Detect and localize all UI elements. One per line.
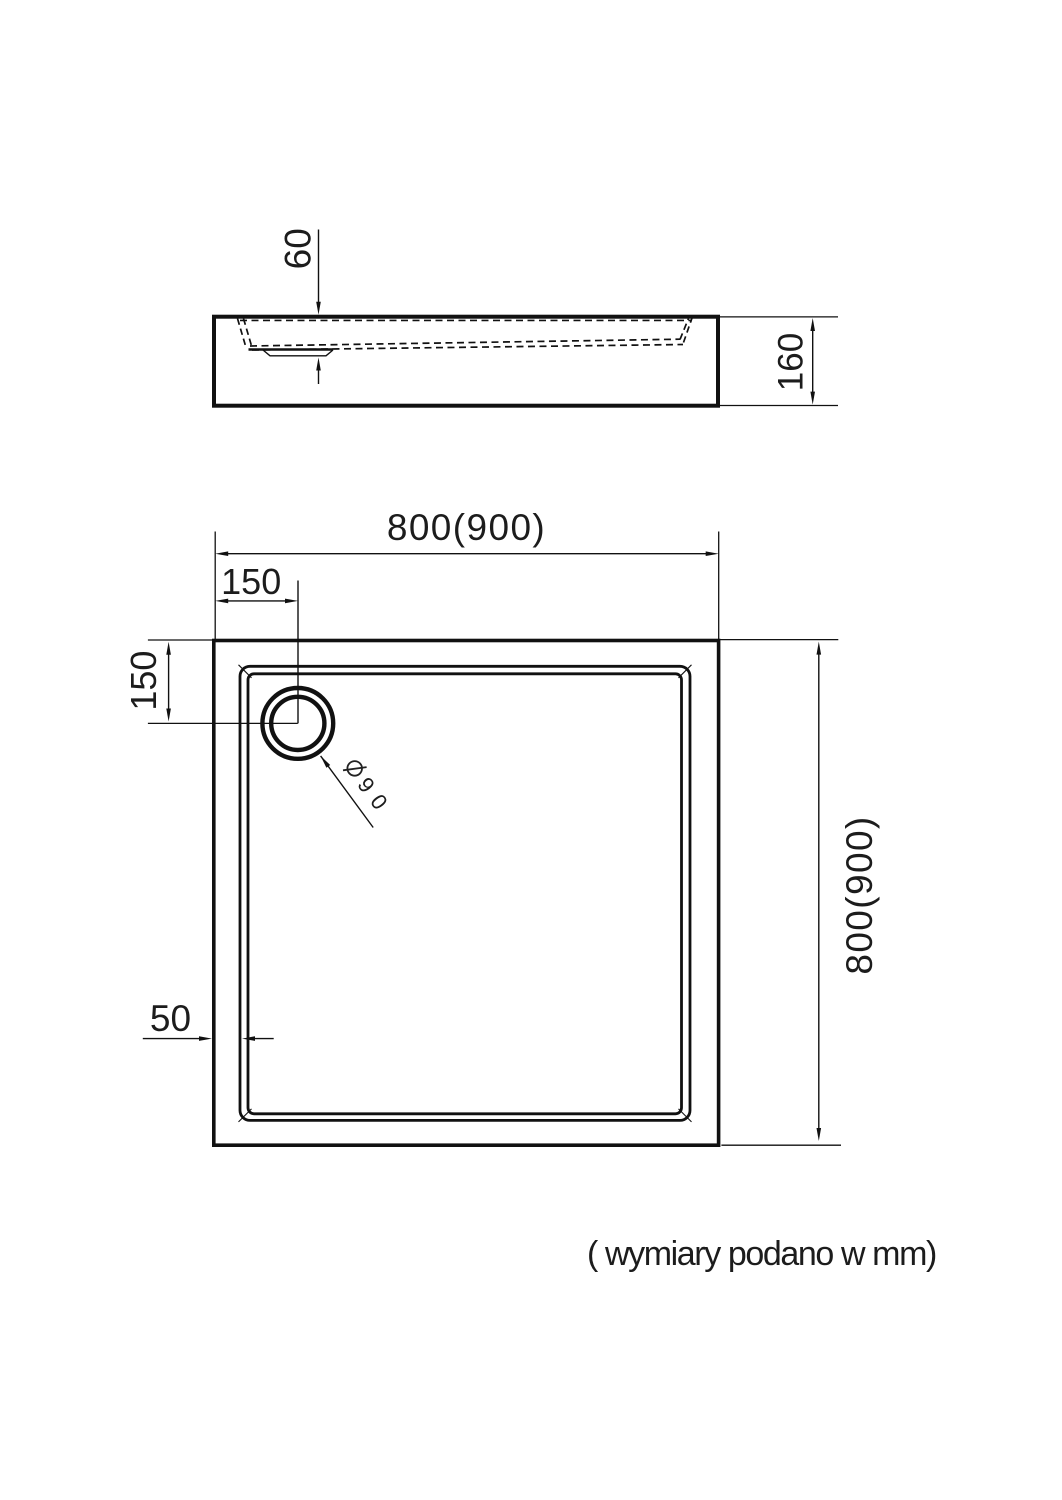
svg-text:150: 150 <box>221 561 281 602</box>
svg-text:( wymiary podano w mm): ( wymiary podano w mm) <box>587 1235 936 1273</box>
svg-text:160: 160 <box>771 333 810 391</box>
svg-text:800(900): 800(900) <box>387 507 546 548</box>
svg-text:800(900): 800(900) <box>839 815 880 974</box>
svg-text:50: 50 <box>150 998 191 1039</box>
svg-text:150: 150 <box>123 651 164 711</box>
svg-text:60: 60 <box>278 228 319 269</box>
